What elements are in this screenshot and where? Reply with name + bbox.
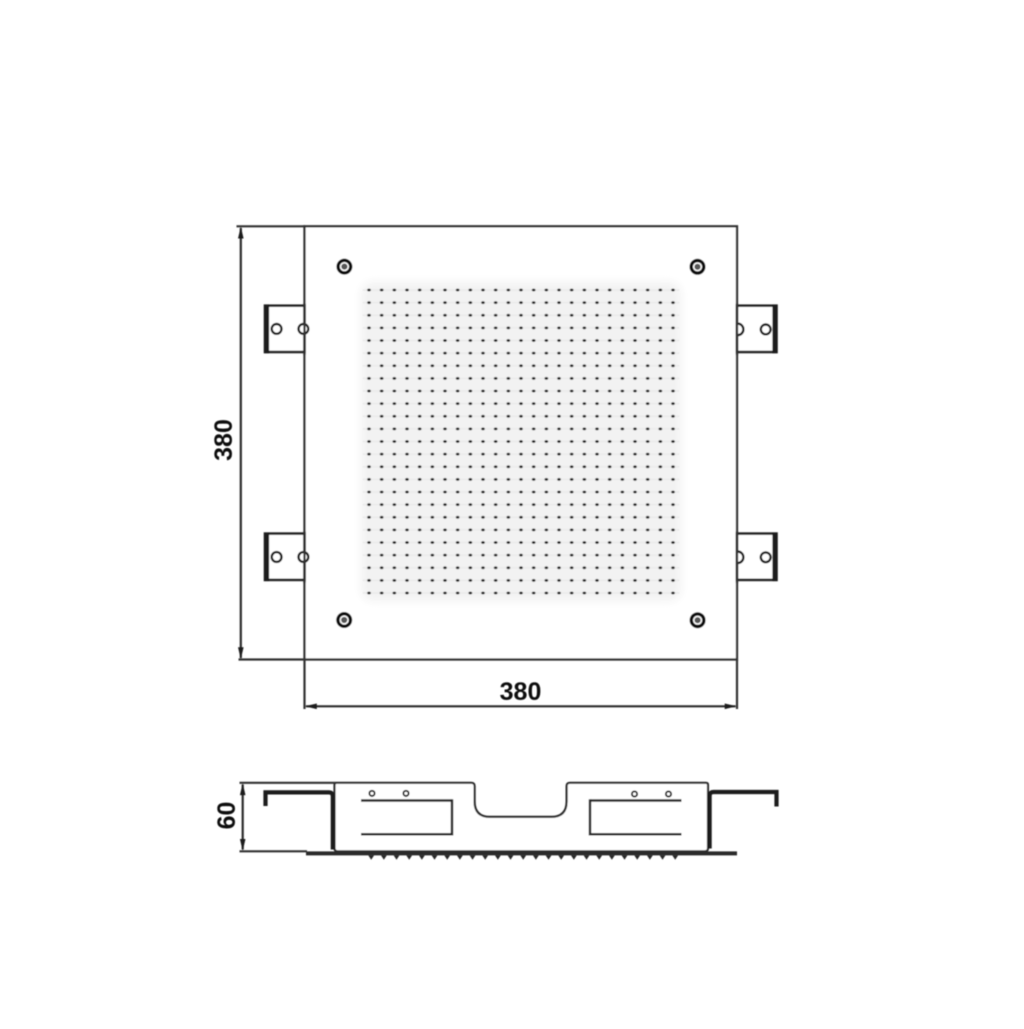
svg-text:60: 60: [213, 802, 241, 830]
svg-text:380: 380: [500, 678, 542, 706]
svg-text:380: 380: [210, 419, 238, 461]
